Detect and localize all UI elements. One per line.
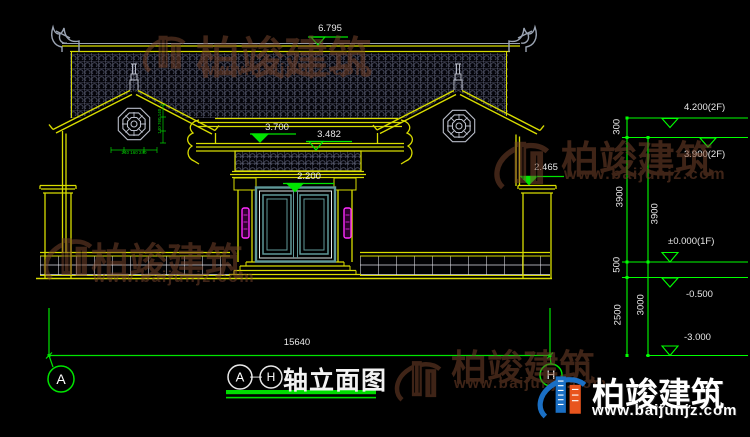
door-head-level-text: 2.200: [289, 172, 329, 182]
ridge-ornament-left-icon: [52, 27, 79, 52]
watermark-url-text: www.baijunjz.com: [201, 60, 372, 80]
brand-logo-url: www.baijunjz.com: [592, 402, 737, 419]
porch-eave-level-text: 3.482: [309, 130, 349, 140]
overall-width-text: 15640: [275, 338, 319, 348]
vdim-2500: 2500: [613, 295, 623, 335]
brand-logo-icon: [536, 364, 592, 428]
bagua-window-right: [443, 110, 474, 141]
vdim-500: 500: [612, 245, 622, 285]
elev-neg0500-text: -0.500: [686, 290, 713, 300]
main-eave-level-text: 3.700: [257, 123, 297, 133]
elev-neg3000-text: -3.000: [684, 333, 711, 343]
left-gable: [49, 64, 219, 153]
watermark-logo-icon: [492, 128, 556, 200]
title-separator: —: [250, 369, 262, 383]
axis-bubble-a: A: [56, 371, 65, 387]
elev-0000-text: ±0.000(1F): [668, 237, 714, 247]
cad-elevation-screenshot: 6.795 3.700 3.482 2.200 2.465 4.200(2F) …: [0, 0, 750, 437]
vdim-3000: 3000: [636, 285, 646, 325]
window-dim-horizontal-text: 240 160 240: [114, 151, 154, 156]
watermark-logo-icon: [393, 338, 447, 422]
elev-4200-text: 4.200(2F): [684, 103, 725, 113]
bagua-window-left: [118, 108, 149, 139]
vdim-3900-right: 3900: [650, 194, 660, 234]
gable-finial-icon: [454, 64, 462, 90]
title-axis-end: H: [267, 370, 276, 384]
ridge-ornament-right-icon: [509, 27, 536, 52]
watermark-logo-icon: [139, 25, 193, 81]
watermark-url-text: www.baijunjz.com: [93, 269, 255, 287]
window-dim-vertical-text: 140 760 140: [158, 101, 163, 141]
watermark-url-text: www.baijunjz.com: [564, 166, 726, 184]
drawing-title: 轴立面图: [283, 361, 387, 397]
title-axis-start: A: [236, 370, 245, 385]
entry-door: [256, 188, 335, 262]
gable-finial-icon: [130, 64, 138, 90]
